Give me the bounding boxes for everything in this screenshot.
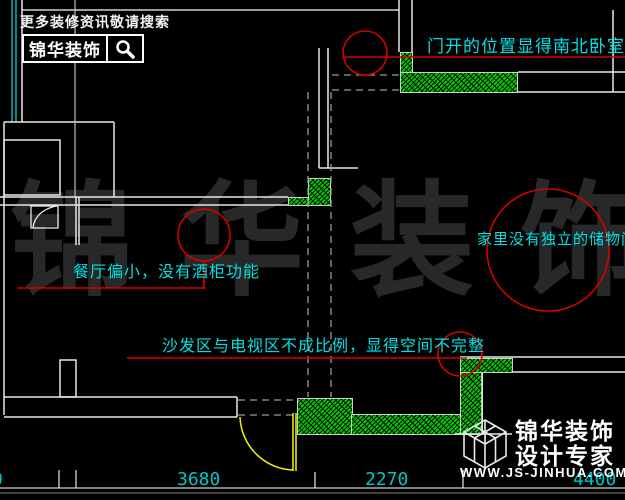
header-tagline: 更多装修资讯敬请搜索: [20, 14, 170, 30]
dimension-3680: 3680: [177, 470, 220, 491]
annotation-sofa-tv-proportion: 沙发区与电视区不成比例，显得空间不完整: [162, 338, 485, 356]
search-icon: [108, 36, 142, 61]
footer-website-url: WWW.JS-JINHUA.COM: [460, 466, 625, 481]
red-annotation-marks: [17, 31, 625, 376]
closet-door-swing: [31, 206, 58, 228]
annotation-no-storage-room: 家里没有独立的储物间: [477, 231, 625, 248]
floorplan-screenshot: 锦 华 装 饰: [0, 0, 625, 500]
cube-logo-icon: [460, 418, 510, 470]
header-brand-searchbox: 锦华装饰: [22, 34, 144, 63]
header-brand-name: 锦华装饰: [24, 36, 106, 61]
annotation-door-ventilation: 门开的位置显得南北卧室通风: [427, 37, 625, 57]
entry-door-swing: [240, 413, 296, 471]
footer-brand-name: 锦华装饰: [515, 419, 615, 445]
dimension-clipped-left: 0: [0, 470, 3, 491]
dimension-2270: 2270: [365, 470, 408, 491]
annotation-dining-too-small: 餐厅偏小，没有酒柜功能: [73, 264, 260, 282]
perimeter-and-interior-walls: [0, 0, 625, 434]
